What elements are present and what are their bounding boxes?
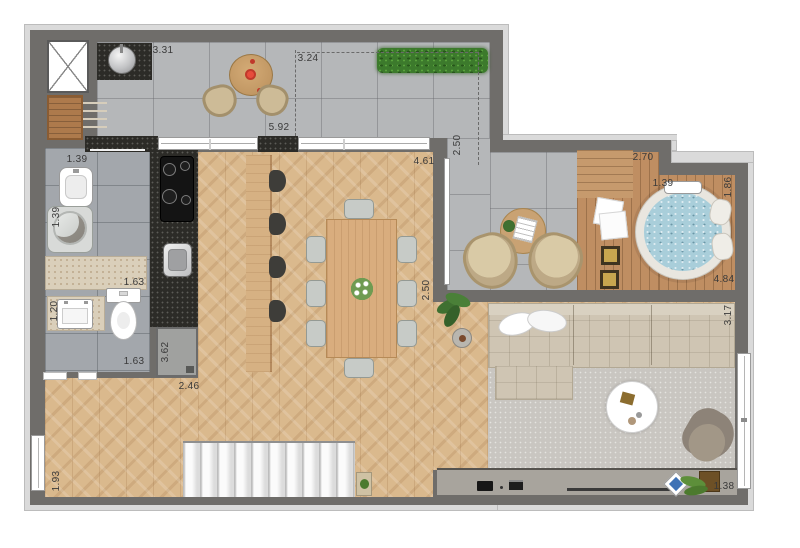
- dim-hall-width: 2.46: [179, 382, 200, 392]
- sofa-seam: [651, 305, 652, 365]
- sofa-seam: [573, 305, 574, 365]
- grill-skewer: [83, 126, 107, 128]
- dim-spa-width: 1.39: [653, 179, 674, 189]
- burner: [181, 195, 191, 205]
- dimension-guide: [297, 52, 478, 53]
- dim-fridge-side: 3.62: [161, 342, 171, 363]
- dim-deck-bottom: 4.84: [714, 275, 735, 285]
- table-dish: [628, 417, 636, 425]
- window-sill-highlight: [90, 149, 145, 151]
- red-dish: [250, 59, 255, 64]
- utility-faucet: [73, 169, 79, 173]
- hall-floor: [45, 378, 198, 497]
- grill-crate: [47, 95, 83, 140]
- door-mullion: [209, 139, 211, 150]
- door-rail: [301, 143, 427, 144]
- dining-chair: [306, 280, 326, 307]
- step-molding-horizontal: [671, 151, 754, 163]
- dining-chair: [397, 320, 417, 347]
- living-window: [737, 353, 751, 489]
- sliding-door-dining: [298, 137, 430, 150]
- dim-terrace-depth: 3.24: [298, 54, 319, 64]
- sliding-door-kitchen: [158, 137, 258, 150]
- bar-stool: [269, 213, 286, 235]
- coffee-cup: [245, 69, 256, 80]
- tv-equipment: [509, 480, 523, 490]
- dim-spa-side: 1.86: [724, 177, 734, 198]
- dining-chair: [306, 236, 326, 263]
- dimension-guide: [478, 52, 479, 165]
- vanity-basin: [62, 308, 88, 324]
- dim-terrace-width: 5.92: [269, 123, 290, 133]
- window-mullion: [38, 438, 39, 488]
- bbq-faucet: [120, 44, 123, 53]
- candle-lantern: [601, 246, 620, 265]
- sofa-chaise: [495, 366, 573, 400]
- dim-terrace-counter: 3.31: [153, 46, 174, 56]
- dim-balcony-edge: 1.38: [714, 482, 735, 492]
- dining-chair: [306, 320, 326, 347]
- dim-stair-window: 1.93: [52, 471, 62, 492]
- plant-pot-dot: [459, 335, 466, 342]
- exterior-cutout: [677, 0, 800, 151]
- dim-dining-door: 4.61: [414, 157, 435, 167]
- toilet-button: [119, 291, 128, 296]
- elevator: [47, 40, 89, 93]
- tv-equipment: [477, 481, 493, 491]
- table-dish: [636, 412, 642, 418]
- dimension-guide: [295, 50, 296, 136]
- dim-living-side: 3.17: [724, 305, 734, 326]
- bar-stool: [269, 256, 286, 278]
- dining-chair: [397, 280, 417, 307]
- window-handle: [741, 418, 747, 422]
- dining-chair: [397, 236, 417, 263]
- refrigerator-handle: [186, 366, 194, 373]
- window-sill-mid: [258, 136, 298, 152]
- grill-skewer: [83, 110, 107, 112]
- floor-plan: 3.31 3.24 5.92 2.50 4.61 2.70 1.39 1.86 …: [0, 0, 800, 548]
- bar-stool: [269, 300, 286, 322]
- door-mullion: [343, 139, 345, 150]
- stair-planter-leaves: [359, 478, 370, 490]
- round-coffee-table: [606, 381, 658, 433]
- bathroom-door-threshold: [78, 372, 97, 380]
- tv-screen: [567, 488, 680, 491]
- burner: [163, 163, 176, 176]
- candle-lantern: [600, 270, 619, 289]
- vanity-faucet: [84, 301, 88, 304]
- mini-plant: [503, 220, 515, 232]
- table-centerpiece: [349, 276, 375, 302]
- utility-sink-basin: [65, 175, 87, 199]
- console-dot: [500, 486, 503, 489]
- dim-bath-width: 1.63: [124, 357, 145, 367]
- dim-deck-top: 2.70: [633, 153, 654, 163]
- bar-stool: [269, 170, 286, 192]
- dim-laundry-side: 1.39: [52, 207, 62, 228]
- grill-skewer: [83, 102, 107, 104]
- burner: [162, 189, 177, 204]
- deck-bench: [577, 150, 633, 198]
- toilet-bowl-inner: [117, 312, 130, 329]
- stair-planter: [356, 472, 372, 496]
- dining-chair: [344, 199, 374, 219]
- dining-chair: [344, 358, 374, 378]
- door-rail: [161, 143, 255, 144]
- dim-laundry-top: 1.39: [67, 155, 88, 165]
- grill-skewer: [83, 118, 107, 120]
- dim-bath-counter: 1.63: [124, 278, 145, 288]
- bathroom-door-threshold: [43, 372, 67, 380]
- dim-dining-right: 2.50: [422, 280, 432, 301]
- lounge-window: [444, 158, 450, 285]
- kitchen-sink-basin: [168, 249, 187, 271]
- burner: [180, 161, 190, 171]
- vanity-faucet: [64, 301, 68, 304]
- dim-vanity-width: 1.20: [50, 301, 60, 322]
- dim-terrace-right: 2.50: [453, 135, 463, 156]
- stairs: [183, 441, 355, 497]
- step-molding-vertical: [671, 140, 677, 151]
- stair-window: [31, 435, 45, 491]
- towel: [599, 211, 629, 241]
